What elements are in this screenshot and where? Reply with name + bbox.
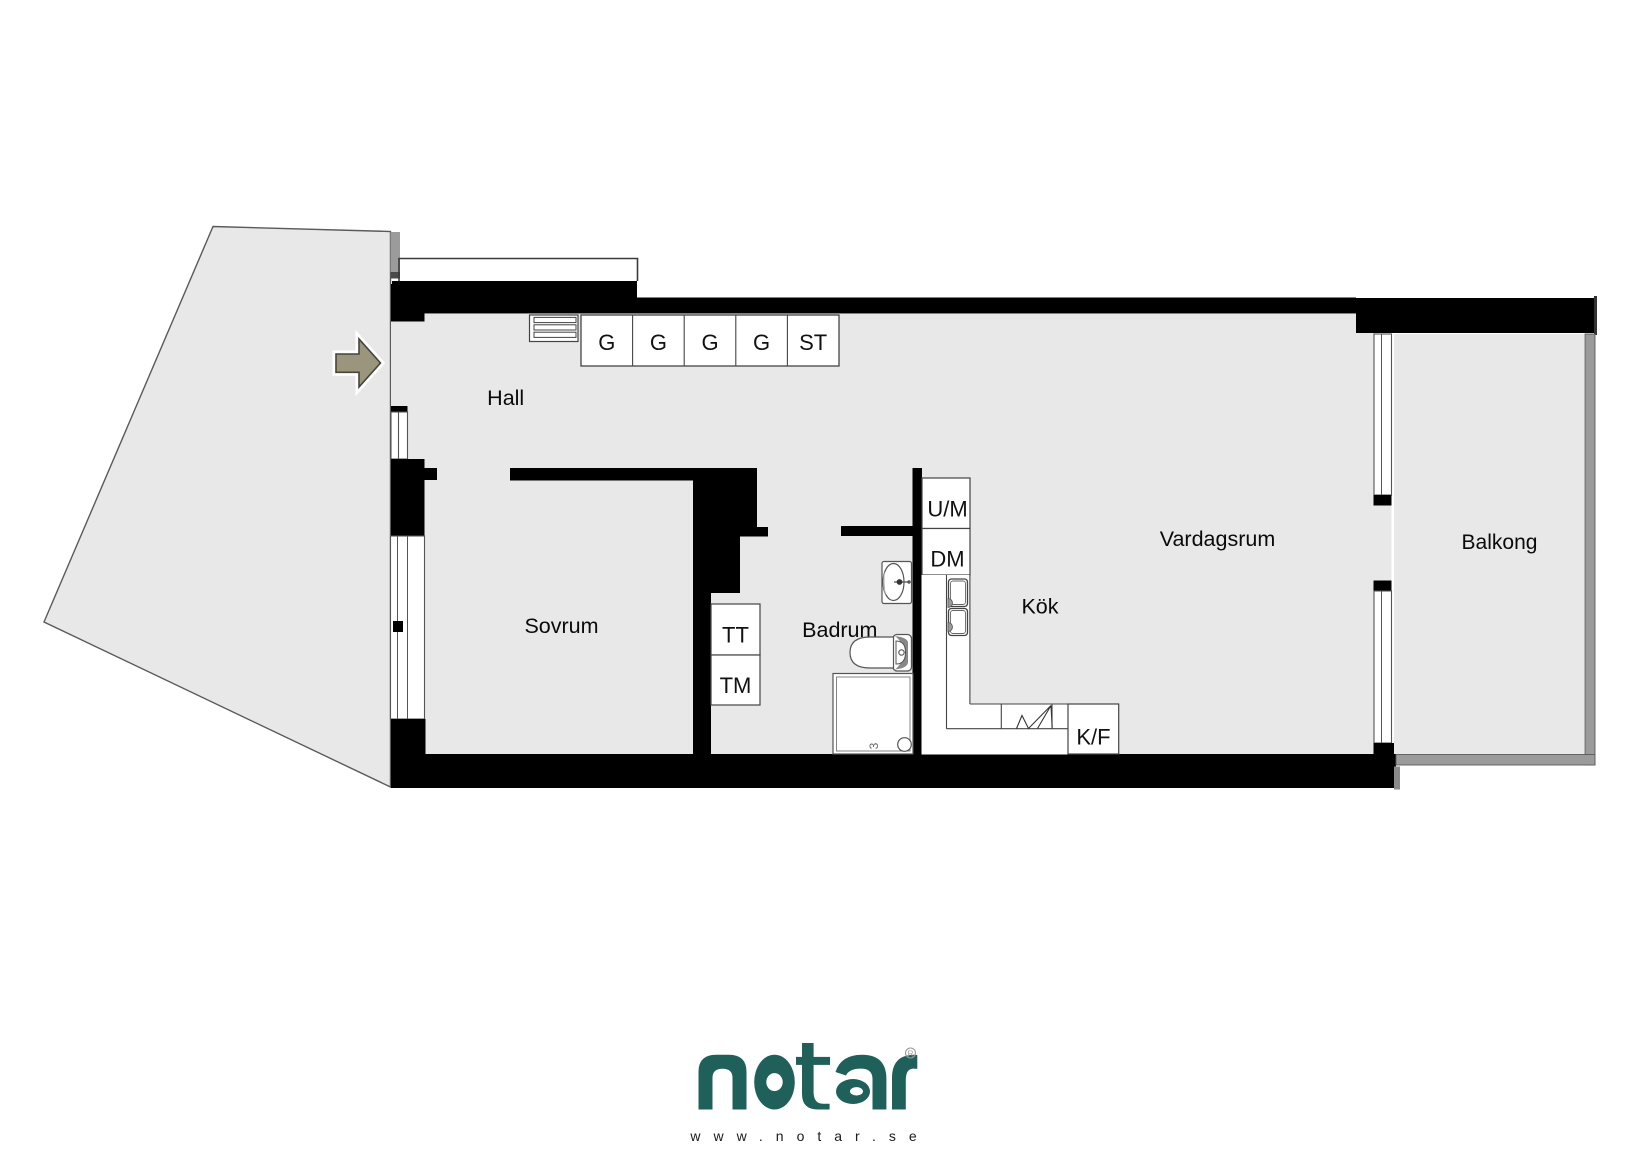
svg-text:ST: ST (799, 330, 827, 355)
svg-text:Sovrum: Sovrum (524, 614, 598, 638)
svg-text:TM: TM (720, 673, 752, 698)
svg-text:G: G (650, 330, 667, 355)
svg-text:Vardagsrum: Vardagsrum (1160, 527, 1276, 551)
svg-text:Kök: Kök (1021, 595, 1058, 619)
svg-text:DM: DM (930, 547, 964, 572)
svg-text:G: G (598, 330, 615, 355)
svg-text:TT: TT (722, 623, 749, 648)
svg-text:3: 3 (867, 742, 881, 749)
svg-text:G: G (753, 330, 770, 355)
svg-text:K/F: K/F (1076, 725, 1110, 750)
svg-text:U/M: U/M (927, 497, 967, 522)
svg-text:www.notar.se: www.notar.se (689, 1128, 929, 1144)
svg-text:Balkong: Balkong (1462, 531, 1538, 554)
svg-text:Hall: Hall (487, 386, 524, 410)
svg-text:G: G (701, 330, 718, 355)
svg-text:R: R (908, 1050, 914, 1059)
